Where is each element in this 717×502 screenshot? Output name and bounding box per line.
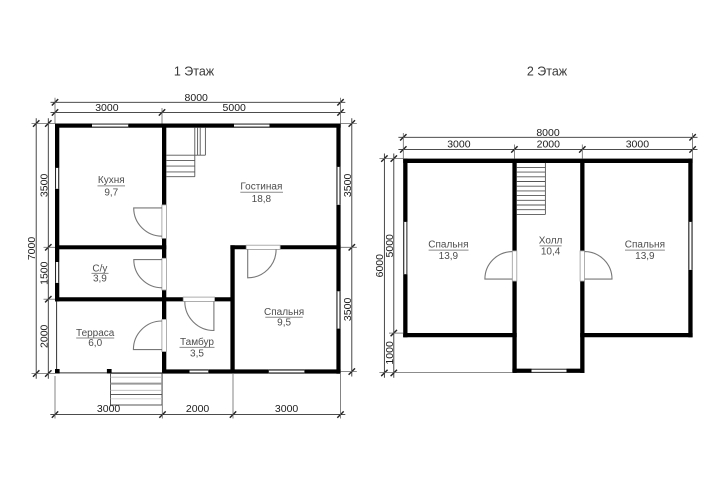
svg-text:3000: 3000 — [95, 102, 119, 114]
svg-text:18,8: 18,8 — [252, 194, 272, 205]
svg-text:Спальня: Спальня — [264, 307, 304, 318]
svg-text:3500: 3500 — [342, 174, 354, 198]
svg-text:Спальня: Спальня — [625, 240, 665, 251]
svg-text:2000: 2000 — [186, 403, 210, 415]
svg-text:Тамбур: Тамбур — [180, 336, 214, 348]
svg-text:5000: 5000 — [384, 234, 396, 258]
svg-text:Холл: Холл — [539, 236, 563, 247]
svg-text:Гостиная: Гостиная — [240, 182, 282, 193]
svg-text:7000: 7000 — [26, 237, 38, 261]
svg-text:3000: 3000 — [275, 403, 299, 415]
svg-text:1500: 1500 — [38, 261, 50, 285]
svg-text:8000: 8000 — [536, 127, 560, 139]
svg-text:1000: 1000 — [384, 341, 396, 365]
svg-text:9,7: 9,7 — [104, 187, 118, 198]
svg-text:3500: 3500 — [38, 174, 50, 198]
svg-text:3,5: 3,5 — [190, 348, 204, 359]
svg-text:2000: 2000 — [38, 324, 50, 348]
svg-text:1 Этаж: 1 Этаж — [174, 64, 215, 78]
svg-text:Спальня: Спальня — [428, 240, 468, 251]
svg-text:10,4: 10,4 — [541, 246, 561, 257]
svg-text:6,0: 6,0 — [88, 338, 102, 349]
svg-text:3000: 3000 — [447, 139, 471, 151]
svg-text:3500: 3500 — [342, 298, 354, 322]
svg-text:Кухня: Кухня — [98, 175, 125, 186]
svg-text:3000: 3000 — [97, 403, 121, 415]
svg-text:2 Этаж: 2 Этаж — [527, 64, 568, 78]
svg-text:3000: 3000 — [626, 139, 650, 151]
svg-text:9,5: 9,5 — [277, 318, 291, 329]
svg-text:13,9: 13,9 — [439, 251, 459, 262]
svg-text:8000: 8000 — [185, 92, 209, 104]
svg-text:13,9: 13,9 — [635, 251, 655, 262]
svg-text:5000: 5000 — [223, 102, 247, 114]
svg-text:3,9: 3,9 — [93, 274, 107, 285]
svg-text:2000: 2000 — [537, 139, 561, 151]
